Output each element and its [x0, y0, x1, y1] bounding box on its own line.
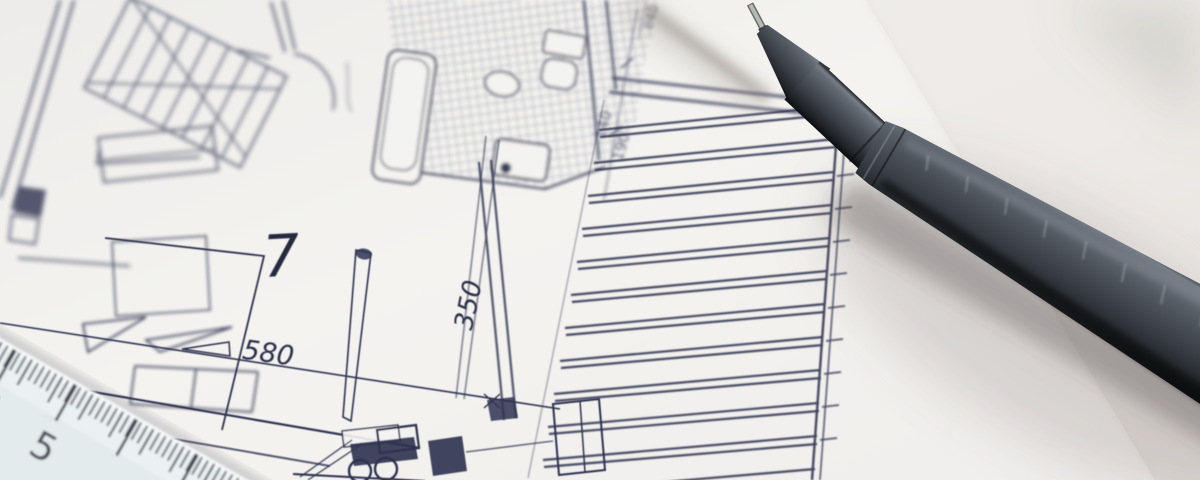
wall-fill-b — [428, 436, 467, 476]
room-number: 7 — [261, 221, 302, 291]
shower-tray — [492, 138, 550, 181]
wall-fill-c — [487, 397, 518, 421]
photo-scene: 140 190 840 7 — [0, 0, 1200, 480]
wall-fill-marker — [14, 186, 46, 217]
